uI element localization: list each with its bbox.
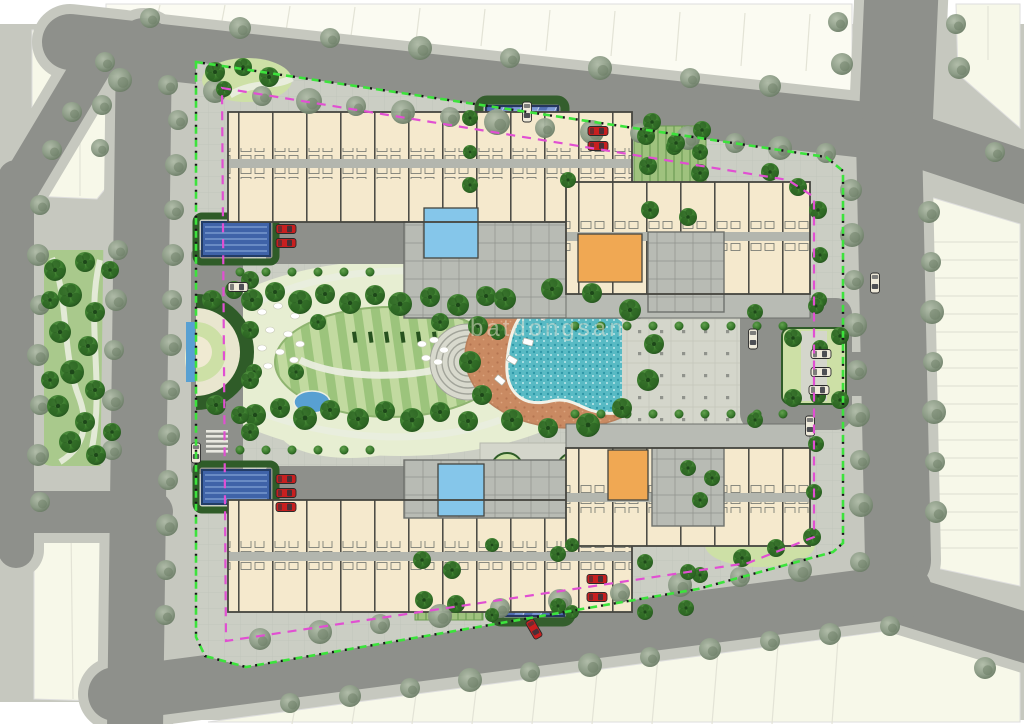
lush-tree-clump bbox=[832, 394, 839, 401]
lush-tree-center bbox=[556, 552, 559, 555]
bathroom-fixtures bbox=[228, 148, 632, 159]
lush-tree-center bbox=[48, 378, 52, 382]
lush-tree-clump bbox=[232, 409, 239, 416]
lush-tree-clump bbox=[471, 151, 477, 157]
lush-tree-clump bbox=[569, 178, 575, 184]
lush-tree-clump bbox=[301, 300, 311, 310]
lush-tree-clump bbox=[276, 290, 284, 298]
car bbox=[228, 283, 248, 292]
lush-tree-clump bbox=[668, 137, 675, 144]
lush-tree-center bbox=[566, 178, 569, 181]
lush-tree-clump bbox=[441, 320, 448, 327]
lush-tree-clump bbox=[471, 183, 477, 189]
lush-tree-center bbox=[68, 440, 72, 444]
lush-tree-center bbox=[248, 430, 252, 434]
lush-tree-clump bbox=[289, 294, 299, 304]
pebble-stone bbox=[276, 349, 285, 355]
lush-tree-clump bbox=[351, 301, 360, 310]
street-tree-shade bbox=[850, 232, 861, 243]
street-tree-shade bbox=[103, 60, 112, 69]
street-tree-shade bbox=[348, 693, 358, 703]
car-rear-window bbox=[278, 240, 282, 246]
lush-tree-clump bbox=[242, 274, 249, 281]
lush-tree-clump bbox=[51, 298, 58, 305]
lush-tree-clump bbox=[321, 403, 329, 411]
lush-tree-center bbox=[468, 183, 471, 186]
street-tree-shade bbox=[498, 606, 507, 615]
lush-tree-clump bbox=[61, 330, 70, 339]
lush-tree-clump bbox=[316, 287, 324, 295]
lush-tree-center bbox=[644, 134, 648, 138]
street-tree-shade bbox=[165, 522, 175, 532]
indoor-pool-room bbox=[438, 464, 484, 516]
lush-tree-clump bbox=[689, 215, 696, 222]
lush-tree-center bbox=[108, 268, 112, 272]
hedge-bush bbox=[288, 268, 297, 277]
lush-tree-clump bbox=[448, 297, 457, 306]
car-rear-window bbox=[278, 226, 282, 232]
lush-tree-center bbox=[571, 544, 574, 547]
street-tree-shade bbox=[36, 252, 46, 262]
lush-tree-clump bbox=[359, 417, 368, 426]
lush-tree-clump bbox=[414, 554, 421, 561]
lush-tree-center bbox=[484, 294, 488, 298]
car-rear-window bbox=[230, 284, 234, 290]
lush-tree-clump bbox=[76, 415, 84, 423]
street-tree-shade bbox=[993, 150, 1002, 159]
street-tree-shade bbox=[38, 500, 47, 509]
lush-tree-center bbox=[648, 208, 652, 212]
lush-tree-clump bbox=[483, 393, 491, 401]
street-tree-shade bbox=[167, 432, 177, 442]
lush-tree-clump bbox=[281, 406, 289, 414]
street-tree-shade bbox=[618, 591, 627, 600]
lush-tree-clump bbox=[256, 413, 265, 422]
car bbox=[749, 329, 758, 349]
lush-tree-clump bbox=[653, 120, 660, 127]
lush-tree-clump bbox=[647, 134, 654, 141]
lush-tree-clump bbox=[251, 430, 258, 437]
lush-tree-clump bbox=[401, 412, 411, 422]
lush-tree-clump bbox=[79, 339, 87, 347]
hedge-bush bbox=[366, 268, 375, 277]
lush-tree-clump bbox=[681, 462, 687, 468]
lush-tree-center bbox=[83, 260, 87, 264]
lush-tree-clump bbox=[703, 128, 710, 135]
lush-tree-clump bbox=[464, 147, 470, 153]
lush-tree-center bbox=[768, 170, 772, 174]
lush-tree-clump bbox=[506, 297, 515, 306]
hedge-bush bbox=[649, 322, 658, 331]
car-rear-window bbox=[589, 594, 593, 600]
lush-tree-clump bbox=[71, 440, 80, 449]
car-rear-window bbox=[590, 128, 594, 134]
hedge-bush bbox=[779, 322, 788, 331]
pebble-stone bbox=[418, 341, 427, 347]
street-tree-shade bbox=[306, 98, 318, 110]
lush-tree-clump bbox=[734, 552, 741, 559]
lush-tree-clump bbox=[815, 490, 821, 496]
lush-tree-center bbox=[450, 568, 454, 572]
lush-tree-clump bbox=[513, 418, 522, 427]
lush-tree-clump bbox=[502, 412, 511, 421]
lush-tree-clump bbox=[113, 430, 120, 437]
lush-tree-center bbox=[253, 413, 257, 417]
lush-tree-clump bbox=[638, 372, 647, 381]
lush-tree-clump bbox=[649, 164, 656, 171]
street-tree-shade bbox=[888, 624, 897, 633]
street-tree-shade bbox=[768, 639, 777, 648]
car-windshield bbox=[750, 340, 756, 345]
lush-tree-clump bbox=[495, 291, 504, 300]
lush-tree-center bbox=[398, 302, 403, 307]
lush-tree-clump bbox=[794, 336, 801, 343]
lush-tree-clump bbox=[251, 278, 258, 285]
lush-tree-clump bbox=[701, 498, 707, 504]
lush-tree-clump bbox=[762, 166, 769, 173]
car-windshield bbox=[820, 387, 825, 393]
lush-tree-clump bbox=[289, 366, 295, 372]
lush-tree-clump bbox=[45, 262, 54, 271]
lush-tree-clump bbox=[649, 378, 658, 387]
lush-tree-clump bbox=[56, 268, 65, 277]
street-tree-shade bbox=[168, 388, 177, 397]
street-tree-shade bbox=[36, 352, 46, 362]
core-detail bbox=[652, 448, 724, 526]
lush-tree-clump bbox=[42, 374, 49, 381]
street-tree-shade bbox=[170, 298, 179, 307]
lush-tree-center bbox=[454, 602, 458, 606]
lush-tree-clump bbox=[748, 414, 754, 420]
street-tree-shade bbox=[648, 655, 657, 664]
lush-tree-center bbox=[469, 151, 472, 154]
street-tree-shade bbox=[836, 20, 845, 29]
lush-tree-clump bbox=[689, 466, 695, 472]
lush-tree-clump bbox=[294, 410, 304, 420]
lush-tree-center bbox=[466, 419, 470, 423]
lush-tree-clump bbox=[469, 419, 477, 427]
street-tree-shade bbox=[36, 452, 46, 462]
street-tree-shade bbox=[38, 203, 47, 212]
lush-tree-center bbox=[686, 215, 690, 219]
lush-tree-clump bbox=[86, 305, 94, 313]
lush-tree-clump bbox=[477, 289, 485, 297]
lush-tree-clump bbox=[459, 414, 467, 422]
core-detail bbox=[648, 232, 724, 312]
lush-tree-center bbox=[468, 116, 471, 119]
lush-tree-clump bbox=[655, 342, 663, 350]
lush-tree-clump bbox=[559, 604, 565, 610]
lush-tree-clump bbox=[432, 316, 439, 323]
lush-tree-clump bbox=[216, 70, 224, 78]
street-tree-shade bbox=[768, 83, 778, 93]
pebble-stone bbox=[284, 331, 293, 337]
lush-tree-center bbox=[267, 75, 271, 79]
hedge-bush bbox=[236, 446, 245, 455]
street-tree-shade bbox=[849, 187, 859, 197]
car-windshield bbox=[524, 113, 530, 118]
lush-tree-center bbox=[646, 378, 650, 382]
lush-tree-center bbox=[791, 396, 795, 400]
lush-tree-center bbox=[323, 292, 327, 296]
lush-tree-clump bbox=[86, 260, 94, 268]
crosswalk-stripe bbox=[206, 440, 228, 443]
street-tree-shade bbox=[852, 278, 861, 287]
street-tree-shade bbox=[688, 76, 697, 85]
lush-tree-center bbox=[348, 301, 352, 305]
lush-tree-center bbox=[491, 614, 494, 617]
street-tree-shade bbox=[856, 412, 867, 423]
lush-tree-center bbox=[674, 141, 678, 145]
car bbox=[276, 225, 296, 234]
lush-tree-clump bbox=[819, 208, 826, 215]
lush-tree-clump bbox=[96, 310, 104, 318]
lush-tree-clump bbox=[413, 418, 423, 428]
lush-tree-clump bbox=[97, 453, 105, 461]
lush-tree-clump bbox=[646, 610, 652, 616]
car-rear-window bbox=[278, 504, 282, 510]
street-tree-shade bbox=[543, 126, 552, 135]
lush-tree-center bbox=[816, 208, 820, 212]
car-windshield bbox=[239, 284, 244, 290]
lush-tree-center bbox=[650, 120, 654, 124]
lush-tree-clump bbox=[493, 544, 499, 550]
street-tree-shade bbox=[148, 16, 157, 25]
lush-tree-clump bbox=[620, 302, 629, 311]
lush-tree-clump bbox=[642, 204, 649, 211]
street-tree-shade bbox=[840, 61, 850, 71]
lush-tree-clump bbox=[270, 75, 278, 83]
lush-tree-center bbox=[698, 573, 701, 576]
lush-tree-clump bbox=[692, 167, 699, 174]
street-tree-shade bbox=[408, 686, 417, 695]
hedge-bush bbox=[314, 268, 323, 277]
lush-tree-clump bbox=[331, 408, 339, 416]
pebble-stone bbox=[434, 359, 443, 365]
lush-tree-clump bbox=[687, 606, 693, 612]
lush-tree-clump bbox=[487, 294, 495, 302]
lush-tree-clump bbox=[713, 476, 719, 482]
street-tree-shade bbox=[318, 629, 329, 640]
lush-tree-center bbox=[422, 598, 426, 602]
lush-tree-center bbox=[238, 413, 242, 417]
amenity-room bbox=[608, 450, 648, 500]
car-rear-window bbox=[872, 275, 878, 279]
street-tree-shade bbox=[258, 636, 268, 646]
crosswalk-stripe bbox=[206, 445, 228, 448]
lush-tree-center bbox=[753, 310, 756, 313]
lush-tree-clump bbox=[89, 344, 97, 352]
lush-tree-clump bbox=[705, 472, 711, 478]
pebble-stone bbox=[258, 345, 267, 351]
lush-tree-clump bbox=[311, 316, 317, 322]
lush-tree-clump bbox=[701, 150, 707, 156]
entry-water-strip bbox=[186, 322, 195, 382]
lush-tree-clump bbox=[694, 124, 701, 131]
lush-tree-clump bbox=[386, 409, 394, 417]
hedge-bush bbox=[779, 410, 788, 419]
lush-tree-clump bbox=[319, 320, 325, 326]
lush-tree-clump bbox=[51, 378, 58, 385]
lush-tree-center bbox=[356, 417, 360, 421]
lush-tree-clump bbox=[593, 291, 601, 299]
car bbox=[276, 503, 296, 512]
street-tree-shade bbox=[50, 148, 59, 157]
lush-tree-center bbox=[468, 360, 472, 364]
lush-tree-clump bbox=[813, 535, 820, 542]
hedge-bush bbox=[727, 322, 736, 331]
lush-tree-center bbox=[698, 498, 701, 501]
lush-tree-clump bbox=[589, 423, 599, 433]
lush-tree-center bbox=[838, 334, 842, 338]
lush-tree-clump bbox=[486, 540, 492, 546]
street-tree-shade bbox=[116, 248, 125, 257]
car bbox=[871, 273, 880, 293]
lush-tree-clump bbox=[431, 405, 439, 413]
lush-tree-center bbox=[753, 418, 756, 421]
hedge-bush bbox=[340, 268, 349, 277]
lush-tree-center bbox=[628, 308, 632, 312]
lush-tree-clump bbox=[340, 295, 349, 304]
lush-tree-center bbox=[838, 398, 842, 402]
lush-tree-clump bbox=[463, 112, 469, 118]
lush-tree-clump bbox=[680, 211, 687, 218]
lush-tree-clump bbox=[425, 598, 432, 605]
site-plan-svg: batdongsan bbox=[0, 0, 1024, 724]
lush-tree-center bbox=[818, 253, 821, 256]
street-tree-shade bbox=[930, 309, 941, 320]
lush-tree-clump bbox=[631, 308, 640, 317]
lush-tree-clump bbox=[242, 324, 249, 331]
lush-tree-clump bbox=[551, 600, 557, 606]
road bbox=[889, 138, 898, 560]
lush-tree-clump bbox=[549, 426, 557, 434]
car-rear-window bbox=[807, 418, 813, 422]
lush-tree-clump bbox=[423, 558, 430, 565]
lush-tree-center bbox=[93, 310, 97, 314]
street-tree-shade bbox=[114, 297, 124, 307]
lush-tree-clump bbox=[453, 568, 460, 575]
lush-tree-clump bbox=[473, 388, 481, 396]
car-windshield bbox=[872, 284, 878, 289]
lush-tree-center bbox=[420, 558, 424, 562]
lush-tree-center bbox=[546, 426, 550, 430]
street-tree-shade bbox=[354, 104, 363, 113]
hedge-bush bbox=[701, 410, 710, 419]
lush-tree-clump bbox=[253, 298, 262, 307]
hedge-bush bbox=[675, 410, 684, 419]
car bbox=[587, 575, 607, 584]
corridor bbox=[228, 159, 632, 168]
lush-tree-clump bbox=[266, 285, 274, 293]
pebble-stone bbox=[290, 357, 299, 363]
indoor-pool-room bbox=[424, 208, 478, 258]
street-tree-shade bbox=[798, 567, 809, 578]
lush-tree-clump bbox=[651, 208, 658, 215]
lush-tree-clump bbox=[832, 330, 839, 337]
lush-tree-clump bbox=[638, 606, 644, 612]
car-windshield bbox=[287, 476, 292, 482]
lush-tree-clump bbox=[577, 417, 587, 427]
lush-tree-clump bbox=[566, 540, 572, 546]
lush-tree-center bbox=[646, 164, 650, 168]
street-tree-shade bbox=[166, 83, 175, 92]
car-rear-window bbox=[278, 490, 282, 496]
car bbox=[587, 593, 607, 602]
hedge-bush bbox=[571, 410, 580, 419]
lush-tree-center bbox=[643, 560, 646, 563]
lush-tree-clump bbox=[573, 611, 579, 617]
lush-tree-center bbox=[456, 303, 460, 307]
car-windshield bbox=[822, 369, 827, 375]
lush-tree-center bbox=[438, 410, 442, 414]
lush-tree-center bbox=[428, 295, 432, 299]
street-tree-shade bbox=[163, 613, 172, 622]
lush-tree-clump bbox=[76, 255, 84, 263]
street-tree-shade bbox=[932, 409, 943, 420]
car bbox=[276, 475, 296, 484]
car-windshield bbox=[287, 504, 292, 510]
car-rear-window bbox=[811, 387, 815, 393]
lush-tree-clump bbox=[203, 293, 211, 301]
road bbox=[135, 46, 144, 724]
lush-tree-clump bbox=[553, 287, 562, 296]
watermark-text: batdongsan bbox=[470, 315, 625, 342]
lush-tree-center bbox=[438, 320, 442, 324]
lush-tree-clump bbox=[86, 383, 94, 391]
masterplan-canvas: batdongsan bbox=[0, 0, 1024, 724]
car-rear-window bbox=[589, 576, 593, 582]
street-tree-shade bbox=[934, 509, 944, 519]
lush-tree-clump bbox=[366, 288, 374, 296]
car-windshield bbox=[599, 143, 604, 149]
lush-tree-clump bbox=[623, 406, 631, 414]
building-top-right bbox=[566, 182, 810, 318]
lush-tree-clump bbox=[785, 392, 792, 399]
lush-tree-clump bbox=[542, 281, 551, 290]
lush-tree-clump bbox=[59, 404, 68, 413]
car-windshield bbox=[598, 576, 603, 582]
lush-tree-center bbox=[652, 342, 656, 346]
lush-tree-clump bbox=[701, 171, 708, 178]
lush-tree-center bbox=[556, 604, 559, 607]
lush-tree-clump bbox=[486, 610, 492, 616]
lush-tree-center bbox=[58, 330, 62, 334]
street-tree-shade bbox=[171, 252, 181, 262]
street-tree-shade bbox=[828, 631, 838, 641]
hedge-bush bbox=[288, 446, 297, 455]
lush-tree-clump bbox=[693, 146, 699, 152]
service-bar bbox=[566, 424, 810, 448]
street-tree-shade bbox=[110, 448, 119, 457]
lush-tree-clump bbox=[460, 354, 469, 363]
car-rear-window bbox=[813, 369, 817, 375]
street-tree-shade bbox=[176, 118, 185, 127]
street-tree-shade bbox=[111, 397, 121, 407]
street-tree-shade bbox=[418, 45, 429, 56]
lush-tree-clump bbox=[644, 116, 651, 123]
lush-tree-clump bbox=[613, 401, 621, 409]
lush-tree-clump bbox=[771, 170, 778, 177]
lush-tree-clump bbox=[242, 292, 251, 301]
lush-tree-clump bbox=[251, 328, 258, 335]
hedge-bush bbox=[340, 446, 349, 455]
lush-tree-clump bbox=[645, 337, 653, 345]
lush-tree-clump bbox=[61, 364, 71, 374]
lush-tree-clump bbox=[693, 494, 699, 500]
lush-tree-clump bbox=[251, 378, 258, 385]
lush-tree-clump bbox=[819, 394, 825, 400]
